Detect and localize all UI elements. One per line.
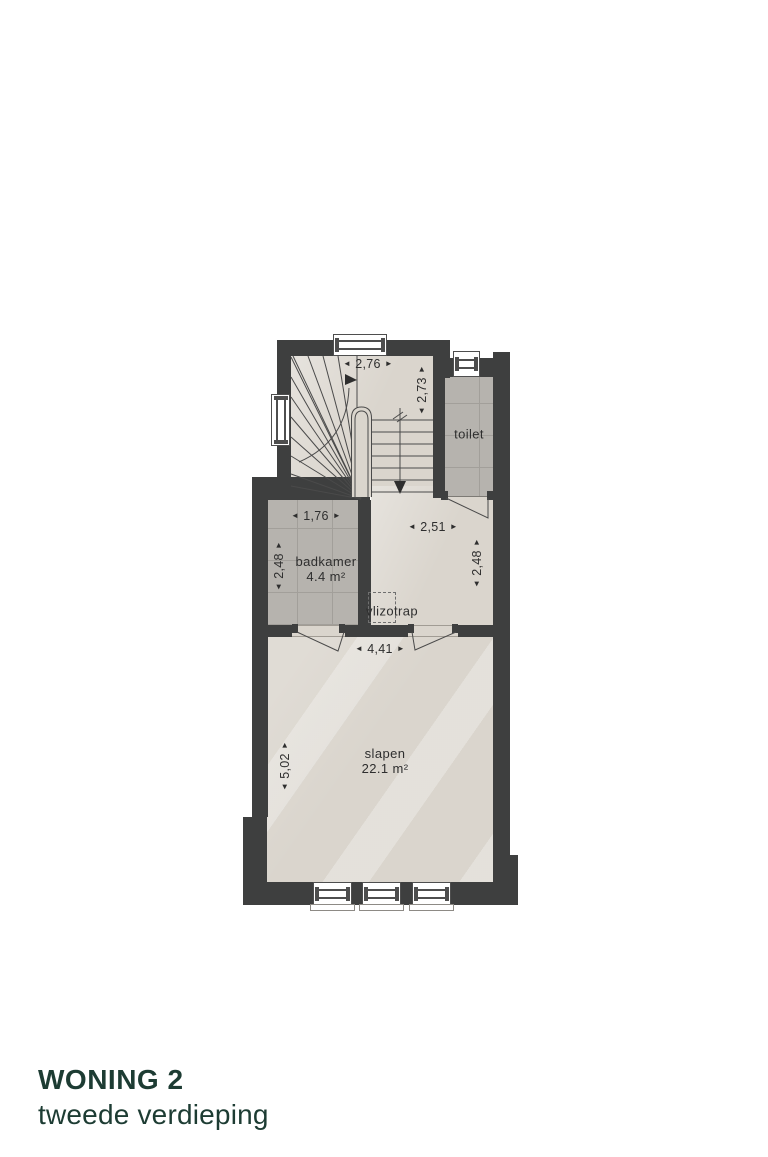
dim-arrow-left-icon: ◄ [343,360,351,368]
window-sill [310,904,355,911]
room-name: toilet [454,427,484,442]
dim-arrow-right-icon: ► [333,512,341,520]
dimension-slapen-depth: ◄ 5,02 ► [278,741,292,791]
door-jamb [487,491,494,500]
dimension-value: 2,76 [355,357,381,371]
door-jamb [452,624,458,633]
dimension-slapen-width: ◄ 4,41 ► [355,642,405,656]
dim-arrow-left-icon: ◄ [355,645,363,653]
room-label-slapen: slapen 22.1 m² [362,746,409,776]
title-project: WONING 2 [38,1064,269,1096]
dim-arrow-right-icon: ► [385,360,393,368]
dimension-badkamer-width: ◄ 1,76 ► [291,509,341,523]
window-toilet [453,351,480,377]
dim-arrow-left-icon: ◄ [291,512,299,520]
door-opening-slapen [408,625,458,637]
dimension-value: 2,51 [420,520,446,534]
window-bottom-3 [412,882,451,905]
door-opening-badkamer [292,625,345,637]
room-area: 22.1 m² [362,761,409,776]
room-label-vlizotrap: vlizotrap [366,604,418,619]
door-jamb [292,624,298,633]
dimension-value: 2,48 [272,553,286,579]
window-left [271,394,290,446]
room-area: 4.4 m² [295,569,356,584]
dim-arrow-right-icon: ► [397,645,405,653]
title-floor: tweede verdieping [38,1099,269,1131]
dimension-stairs-depth: ◄ 2,73 ► [415,365,429,415]
wall-left-lower [243,817,267,905]
door-jamb [408,624,414,633]
room-name: vlizotrap [366,604,418,619]
floorplan-page: ◄ 2,76 ► ◄ 2,73 ► ◄ 1,76 ► ◄ 2,48 ► ◄ 2,… [0,0,768,1157]
dim-arrow-left-icon: ◄ [473,580,481,588]
wall-right [493,352,510,882]
floor-staircase [291,356,433,488]
door-jamb [441,491,448,500]
window-sill [359,904,404,911]
window-bottom-2 [362,882,401,905]
dim-arrow-left-icon: ◄ [281,783,289,791]
dim-arrow-right-icon: ► [281,741,289,749]
room-name: slapen [362,746,409,761]
dimension-badkamer-depth: ◄ 2,48 ► [272,541,286,591]
dim-arrow-right-icon: ► [275,541,283,549]
plan-title: WONING 2 tweede verdieping [38,1064,269,1131]
dimension-value: 5,02 [278,753,292,779]
window-bottom-1 [313,882,352,905]
wall-badkamer-top [252,477,370,500]
dim-arrow-left-icon: ◄ [418,407,426,415]
dim-arrow-right-icon: ► [418,365,426,373]
dimension-value: 4,41 [367,642,393,656]
dimension-value: 2,73 [415,377,429,403]
dimension-value: 1,76 [303,509,329,523]
door-head-toilet [445,496,493,497]
dimension-hall-width: ◄ 2,51 ► [408,520,458,534]
room-label-toilet: toilet [454,427,484,442]
room-name: badkamer [295,554,356,569]
wall-left-mid [252,477,268,817]
dimension-hall-depth: ◄ 2,48 ► [470,538,484,588]
dim-arrow-left-icon: ◄ [275,583,283,591]
door-jamb [339,624,345,633]
window-top [333,334,387,356]
dimension-value: 2,48 [470,550,484,576]
wall-slapen-top [252,625,510,637]
window-sill [409,904,454,911]
room-label-badkamer: badkamer 4.4 m² [295,554,356,584]
dim-arrow-left-icon: ◄ [408,523,416,531]
wall-toilet-left [433,377,445,498]
dimension-stairs-width: ◄ 2,76 ► [343,357,393,371]
dim-arrow-right-icon: ► [450,523,458,531]
dim-arrow-right-icon: ► [473,538,481,546]
